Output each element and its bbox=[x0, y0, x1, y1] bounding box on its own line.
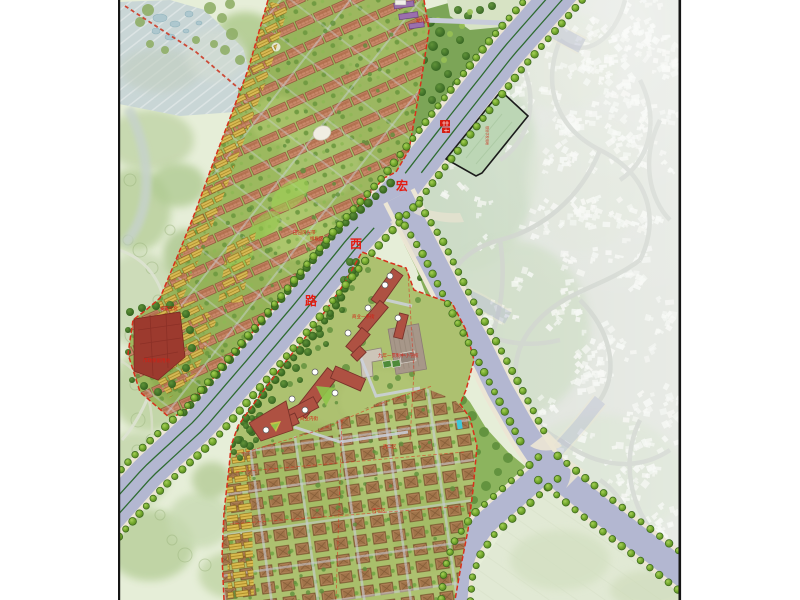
svg-text:路: 路 bbox=[305, 293, 318, 308]
svg-text:宏: 宏 bbox=[396, 178, 408, 193]
svg-text:市政保留用地: 市政保留用地 bbox=[143, 357, 170, 364]
svg-text:西: 西 bbox=[350, 237, 362, 251]
svg-text:规划学校用地: 规划学校用地 bbox=[485, 126, 490, 146]
svg-text:幼儿园: 幼儿园 bbox=[416, 17, 430, 24]
svg-text:田园风光带: 田园风光带 bbox=[293, 229, 316, 236]
svg-text:商业一条街: 商业一条街 bbox=[352, 313, 375, 320]
svg-text:商业内街: 商业内街 bbox=[300, 415, 318, 422]
svg-text:安置配套: 安置配套 bbox=[160, 305, 178, 312]
svg-text:九年一贯制中小学校: 九年一贯制中小学校 bbox=[378, 352, 419, 359]
svg-text:样板区: 样板区 bbox=[310, 235, 324, 242]
